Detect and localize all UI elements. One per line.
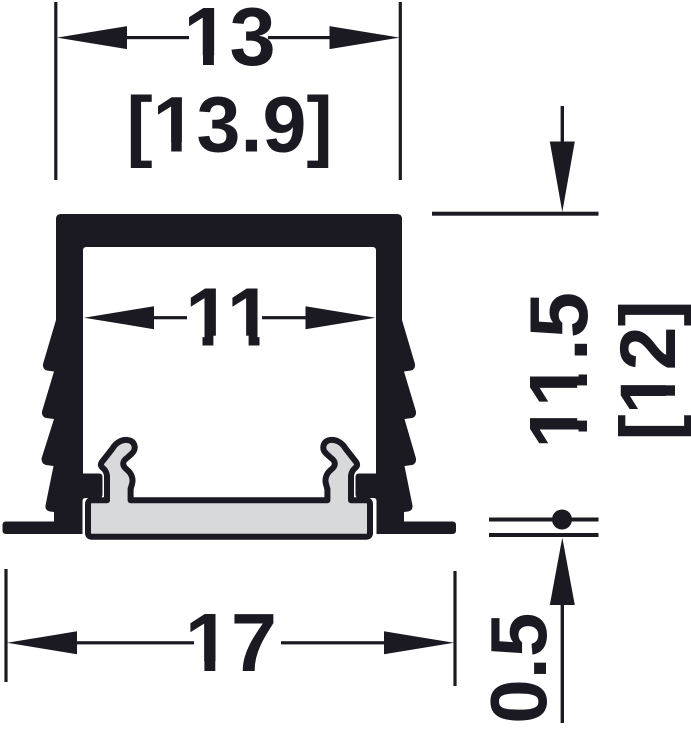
svg-text:11.5: 11.5 xyxy=(512,292,605,449)
svg-text:0.5: 0.5 xyxy=(474,613,563,724)
svg-text:13: 13 xyxy=(183,0,275,83)
svg-text:[13.9]: [13.9] xyxy=(126,80,332,169)
svg-text:[12]: [12] xyxy=(603,300,691,441)
svg-text:17: 17 xyxy=(185,596,277,689)
svg-text:11: 11 xyxy=(185,271,273,364)
